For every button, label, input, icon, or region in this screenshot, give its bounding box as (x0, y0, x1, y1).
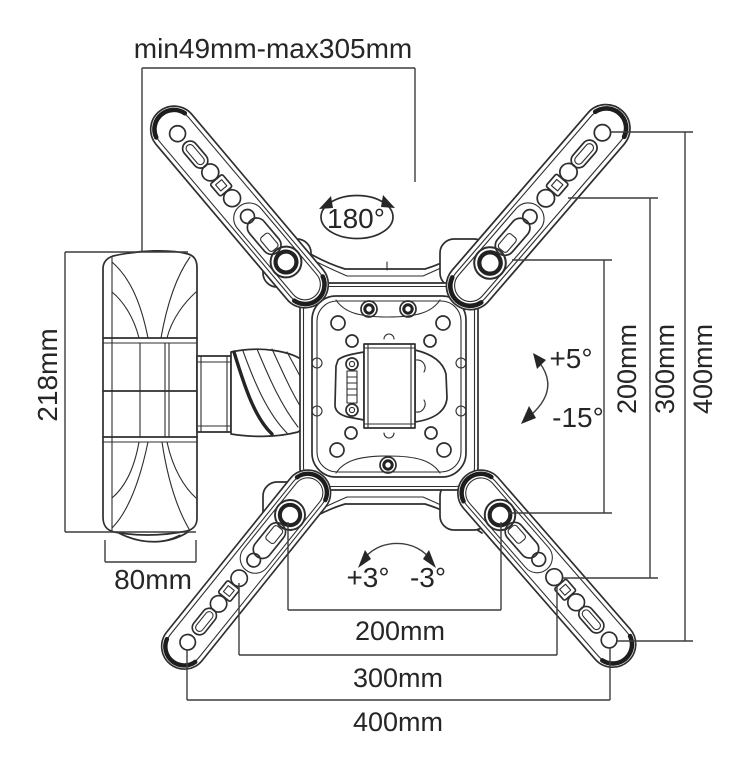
vesa-horizontal-300-label: 300mm (353, 663, 443, 693)
mount-arm-bottom-right (448, 461, 645, 677)
mount-arm-top-right (437, 95, 640, 320)
swivel-annotation: 180° (319, 195, 395, 239)
bracket-height-label: 218mm (32, 328, 63, 421)
roll-left-label: +3° (346, 562, 389, 593)
swivel-angle-label: 180° (327, 203, 385, 234)
extension-range-label: min49mm-max305mm (134, 33, 413, 64)
vesa-vertical-200-label: 200mm (612, 324, 642, 414)
vesa-horizontal-400-label: 400mm (353, 707, 443, 737)
tilt-arrow-up-icon (533, 353, 546, 369)
tilt-annotation: +5° -15° (521, 343, 604, 433)
roll-annotation: +3° -3° (346, 543, 446, 593)
tilt-up-label: +5° (549, 343, 592, 374)
tilt-down-label: -15° (552, 402, 604, 433)
diagram-canvas: min49mm-max305mm 218mm 80mm 180° +5° -15… (0, 0, 750, 769)
dimension-wall-plate-depth: 80mm (105, 540, 196, 595)
vesa-vertical-400-label: 400mm (688, 324, 718, 414)
roll-right-label: -3° (410, 562, 446, 593)
vesa-vertical-300-label: 300mm (650, 324, 680, 414)
tilt-arrow-down-icon (521, 406, 536, 424)
mount-dimension-diagram: min49mm-max305mm 218mm 80mm 180° +5° -15… (0, 0, 750, 769)
vesa-plate (300, 283, 478, 490)
articulating-arm (197, 349, 315, 436)
vesa-horizontal-200-label: 200mm (355, 616, 445, 646)
wall-plate-depth-label: 80mm (114, 564, 192, 595)
arm-clevis (197, 356, 231, 432)
wall-plate (103, 251, 197, 542)
